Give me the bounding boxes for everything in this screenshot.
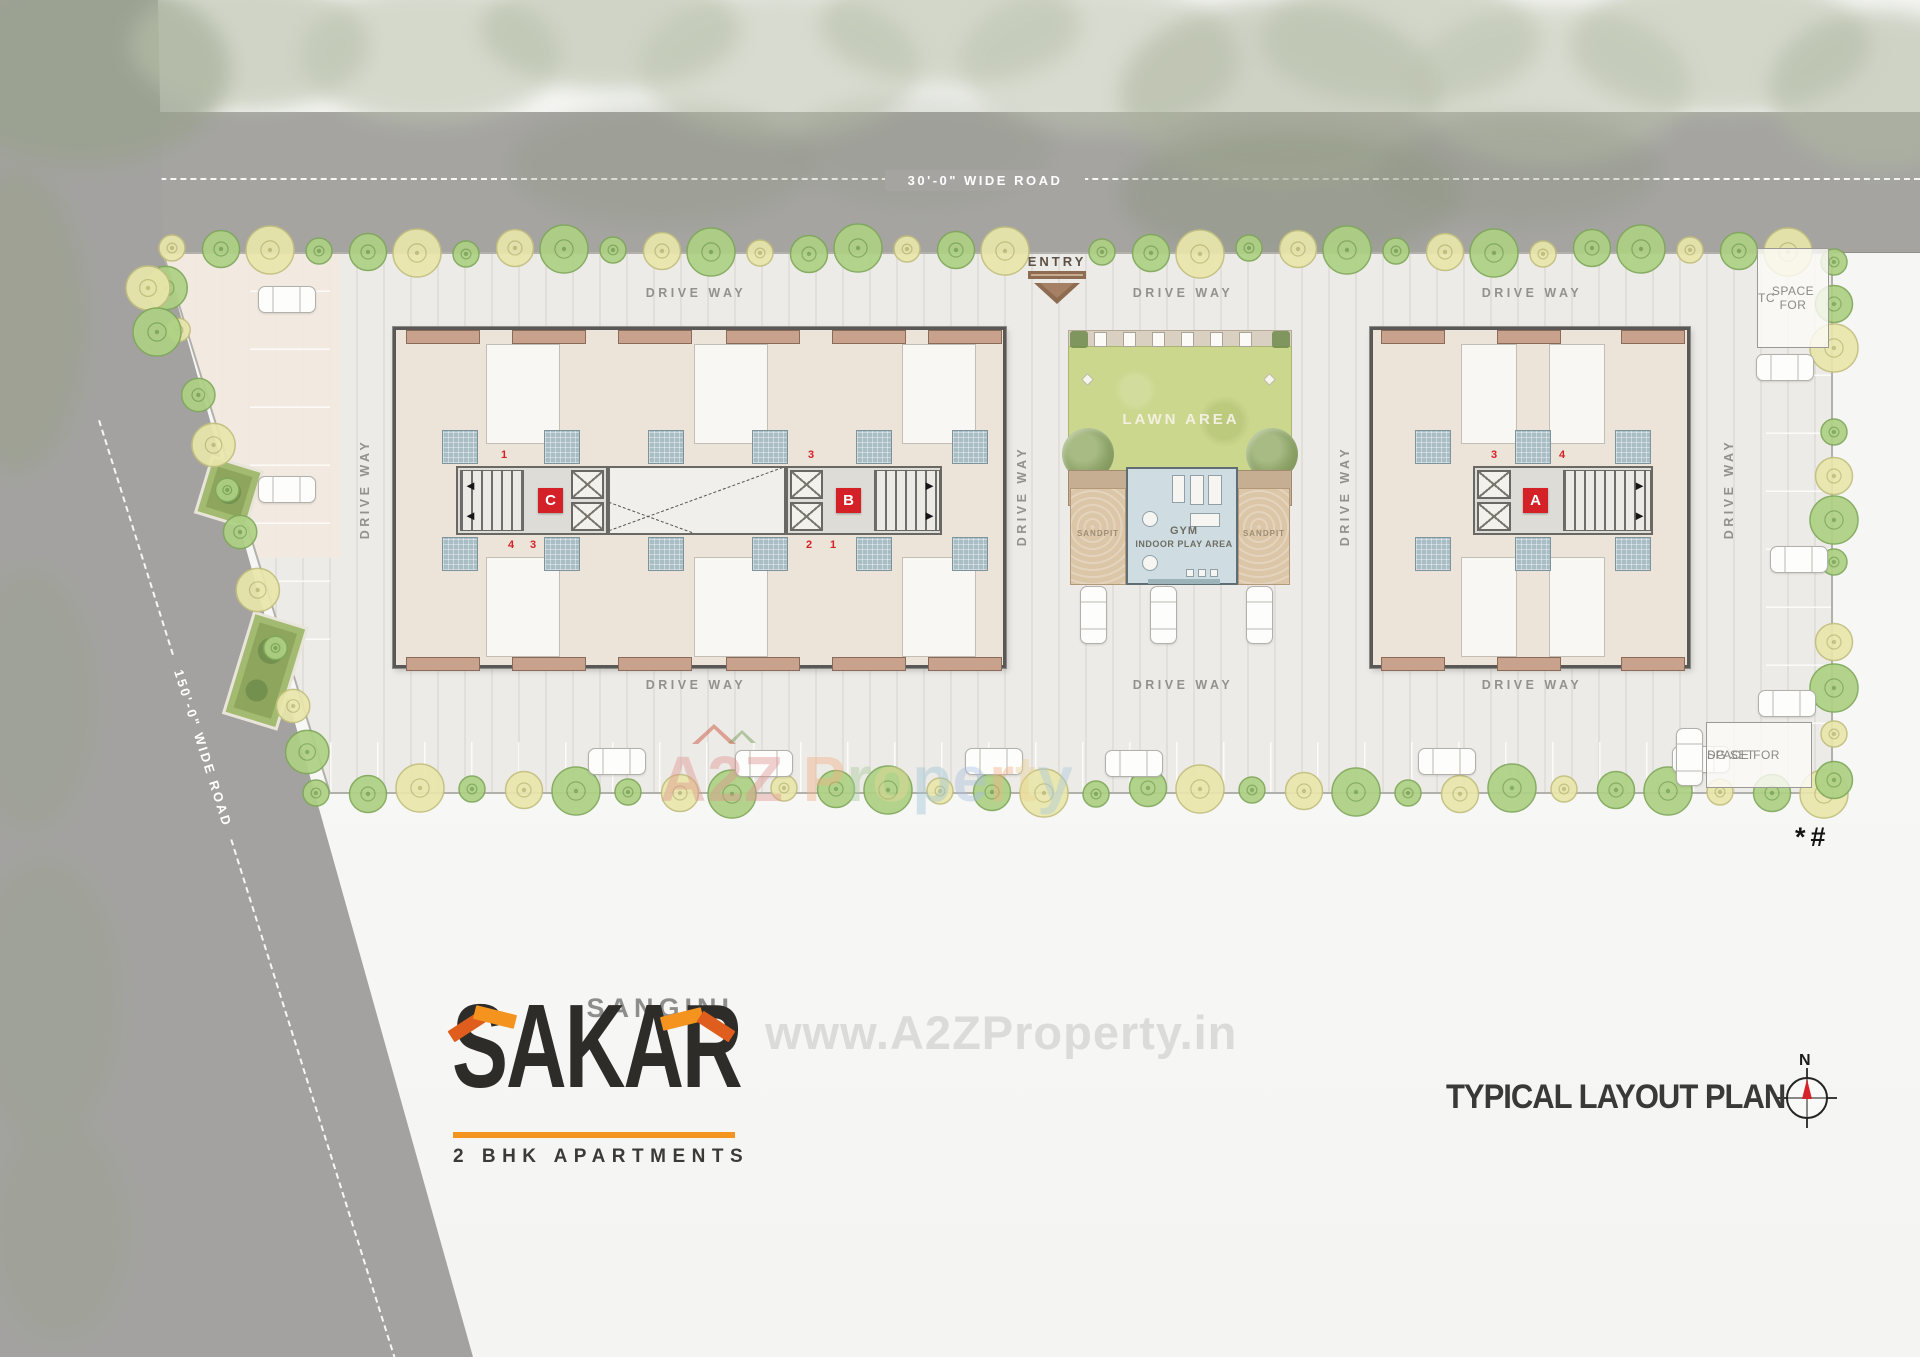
balcony [832, 330, 906, 344]
tree [644, 233, 681, 270]
bathroom [544, 430, 580, 464]
watermark-letter: t [1015, 743, 1037, 815]
deck-lounger [1181, 332, 1194, 347]
balcony [618, 330, 692, 344]
tree [203, 231, 240, 268]
tree [192, 423, 235, 466]
deck-planter [1070, 331, 1088, 348]
watermark-letter: e [952, 743, 989, 815]
unit-number: 3 [1491, 449, 1497, 461]
unit-number: 4 [1559, 449, 1565, 461]
deck-lounger [1152, 332, 1165, 347]
tree [938, 232, 975, 269]
balcony [618, 657, 692, 671]
bathroom [1515, 430, 1551, 464]
tree [453, 241, 479, 267]
bathroom [442, 430, 478, 464]
living-room [1549, 344, 1605, 444]
drive-way-label: DRIVE WAY [1467, 678, 1597, 692]
staircase: ◄◄ [460, 470, 524, 531]
site-plan-canvas: ◄◄ C B ►► 1 2 4 3 3 4 2 1 [0, 0, 1920, 1357]
deck-lounger [1210, 332, 1223, 347]
living-room [1461, 557, 1517, 657]
building-b-badge: B [836, 488, 861, 513]
balcony [1381, 330, 1445, 344]
tree [1810, 664, 1858, 712]
watermark-letter: p [912, 743, 952, 815]
tree [1470, 229, 1518, 277]
lift [1477, 470, 1511, 499]
bathroom [442, 537, 478, 571]
tree [350, 234, 387, 271]
balcony [1621, 330, 1685, 344]
plan-title: TYPICAL LAYOUT PLAN [1446, 1077, 1785, 1117]
tree [497, 230, 534, 267]
parked-car [1080, 586, 1107, 644]
tree [1383, 238, 1409, 264]
tree [1323, 226, 1371, 274]
watermark-letter: Z [744, 743, 784, 815]
open-to-sky-void [608, 466, 786, 535]
gym-indoor-play-area: GYM INDOOR PLAY AREA [1126, 467, 1238, 585]
watermark-letter: 2 [707, 743, 744, 815]
lawn-area-label: LAWN AREA [1069, 411, 1293, 428]
tree [159, 235, 185, 261]
logo-divider-rule [453, 1132, 735, 1138]
footnote-symbols: *# [1795, 822, 1831, 853]
bathroom [856, 430, 892, 464]
parked-car [1756, 354, 1814, 381]
sandpit-right: SANDPIT [1238, 488, 1290, 585]
sandpit-label: SANDPIT [1071, 529, 1125, 538]
parked-car [1676, 728, 1703, 786]
watermark-letter: P [803, 743, 847, 815]
staircase: ►► [874, 470, 940, 531]
drive-way-label: DRIVE WAY [631, 678, 761, 692]
sandpit-left: SANDPIT [1070, 488, 1126, 585]
entry-marker-arrow [1028, 271, 1086, 304]
deck-lounger [1094, 332, 1107, 347]
drive-way-label: DRIVE WAY [1118, 286, 1248, 300]
logo-name-text: SAKAR [452, 968, 742, 1124]
tree [1810, 496, 1858, 544]
parked-car [588, 748, 646, 775]
balcony [726, 330, 800, 344]
watermark-letter: o [872, 743, 912, 815]
parked-car [1418, 748, 1476, 775]
tree [1598, 772, 1635, 809]
tree [834, 224, 882, 272]
tree [1821, 721, 1847, 747]
bathroom [856, 537, 892, 571]
bathroom [952, 430, 988, 464]
parked-car [258, 476, 316, 503]
drive-way-label: DRIVE WAY [1118, 678, 1248, 692]
parked-car [1246, 586, 1273, 644]
tree [393, 229, 441, 277]
building-a: A ►► 3 4 2 1 [1370, 327, 1690, 668]
tree [126, 266, 170, 310]
tree [1442, 776, 1479, 813]
tree [1286, 773, 1323, 810]
building-b-core: B ►► [786, 466, 942, 535]
tree [1816, 458, 1853, 495]
parked-car [1105, 750, 1163, 777]
bathroom [752, 537, 788, 571]
unit-number: 3 [808, 449, 814, 461]
bathroom [648, 537, 684, 571]
sandpit-label: SANDPIT [1239, 529, 1289, 538]
tree [246, 226, 294, 274]
watermark-logo-text: A2Z Property [660, 742, 1074, 816]
unit-number: 2 [806, 539, 812, 551]
tree [216, 478, 239, 501]
bathroom [544, 537, 580, 571]
drive-way-label: DRIVE WAY [1467, 286, 1597, 300]
space-for-tc-box: SPACE FOR TC [1757, 248, 1829, 348]
living-room [902, 557, 976, 657]
watermark-url-text: www.A2ZProperty.in [765, 1005, 1237, 1060]
bathroom [1515, 537, 1551, 571]
tree [1176, 765, 1224, 813]
indoor-play-label: INDOOR PLAY AREA [1128, 539, 1240, 549]
tree [540, 225, 588, 273]
tree [615, 779, 641, 805]
drive-way-label: DRIVE WAY [358, 424, 372, 554]
tree [182, 378, 215, 411]
tree [1617, 225, 1665, 273]
amenity-area: LAWN AREA SANDPIT SANDPIT GYM INDOOR PLA… [1068, 330, 1292, 585]
staircase: ►► [1563, 470, 1651, 531]
lift [571, 502, 604, 531]
building-a-core: A ►► [1473, 466, 1653, 535]
tree [747, 240, 773, 266]
tree [1133, 235, 1170, 272]
drive-way-label: DRIVE WAY [1015, 431, 1029, 561]
tree [277, 689, 310, 722]
tree [1280, 231, 1317, 268]
parked-car [1150, 586, 1177, 644]
lift [571, 470, 604, 499]
tree [1332, 768, 1380, 816]
balcony [928, 657, 1002, 671]
watermark-letter [784, 743, 803, 815]
balcony [928, 330, 1002, 344]
unit-number: 1 [501, 449, 507, 461]
logo-tagline-text: 2 BHK APARTMENTS [453, 1146, 741, 1168]
living-room [486, 344, 560, 444]
bathroom [1415, 430, 1451, 464]
tree [1551, 776, 1577, 802]
lift [1477, 502, 1511, 531]
building-a-badge: A [1523, 488, 1548, 513]
bathroom [1415, 537, 1451, 571]
tree [1395, 780, 1421, 806]
lift [790, 502, 823, 531]
balcony [726, 657, 800, 671]
living-room [486, 557, 560, 657]
unit-number: 4 [508, 539, 514, 551]
building-c-core: ◄◄ C [456, 466, 608, 535]
deck-planter [1272, 331, 1290, 348]
unit-number: 1 [830, 539, 836, 551]
tree [350, 776, 387, 813]
parked-car [258, 286, 316, 313]
map-overlay [0, 0, 1920, 1357]
dg-label-line2: DG SET [1707, 748, 1755, 762]
balcony [832, 657, 906, 671]
balcony [406, 330, 480, 344]
bathroom [952, 537, 988, 571]
living-room [1549, 557, 1605, 657]
tree [894, 236, 920, 262]
tree [1176, 230, 1224, 278]
tree [600, 237, 626, 263]
entry-label: ENTRY [1002, 254, 1112, 269]
living-room [902, 344, 976, 444]
drive-way-label: DRIVE WAY [631, 286, 761, 300]
balcony [1497, 657, 1561, 671]
unit-number: 3 [530, 539, 536, 551]
watermark-letter: A [660, 743, 707, 815]
balcony [512, 330, 586, 344]
building-c-badge: C [538, 488, 563, 513]
tree [1427, 234, 1464, 271]
gym-label: GYM [1128, 525, 1240, 537]
tree [264, 636, 287, 659]
tree [236, 568, 279, 611]
north-letter: N [1799, 1052, 1811, 1070]
space-for-dg-set-box: SPACE FOR DG SET [1706, 722, 1812, 788]
tree [687, 228, 735, 276]
living-room [694, 344, 768, 444]
tree [1574, 230, 1611, 267]
bathroom [752, 430, 788, 464]
tree [1083, 781, 1109, 807]
balcony [512, 657, 586, 671]
balcony [1497, 330, 1561, 344]
living-room [694, 557, 768, 657]
tree [223, 515, 256, 548]
watermark-letter: r [846, 743, 872, 815]
building-c-b: ◄◄ C B ►► 1 2 4 3 3 4 2 1 [393, 327, 1006, 668]
parked-car [1770, 546, 1828, 573]
tree [506, 772, 543, 809]
drive-way-label: DRIVE WAY [1722, 424, 1736, 554]
deck-loungers [1068, 330, 1292, 350]
tree [303, 780, 329, 806]
tree [286, 730, 329, 773]
tree [1816, 624, 1853, 661]
balcony [406, 657, 480, 671]
balcony [1621, 657, 1685, 671]
tree [133, 308, 181, 356]
watermark-letter: r [989, 743, 1015, 815]
drive-way-label: DRIVE WAY [1338, 431, 1352, 561]
tree [1677, 237, 1703, 263]
living-room [1461, 344, 1517, 444]
lift [790, 470, 823, 499]
deck-lounger [1123, 332, 1136, 347]
tree [1721, 233, 1758, 270]
tree [306, 238, 332, 264]
tree [459, 776, 485, 802]
parked-car [1758, 690, 1816, 717]
tree [791, 236, 828, 273]
tree [1821, 419, 1847, 445]
tree [1530, 241, 1556, 267]
top-road-label: 30'-0" WIDE ROAD [885, 170, 1085, 191]
tree [396, 764, 444, 812]
tree [1236, 235, 1262, 261]
tree [1488, 764, 1536, 812]
bathroom [1615, 430, 1651, 464]
bathroom [648, 430, 684, 464]
tree [1816, 762, 1853, 799]
deck-lounger [1239, 332, 1252, 347]
tc-label-line2: TC [1758, 291, 1775, 305]
tree [1239, 777, 1265, 803]
bathroom [1615, 537, 1651, 571]
balcony [1381, 657, 1445, 671]
watermark-letter: y [1037, 743, 1074, 815]
north-compass: N [1775, 1052, 1841, 1128]
